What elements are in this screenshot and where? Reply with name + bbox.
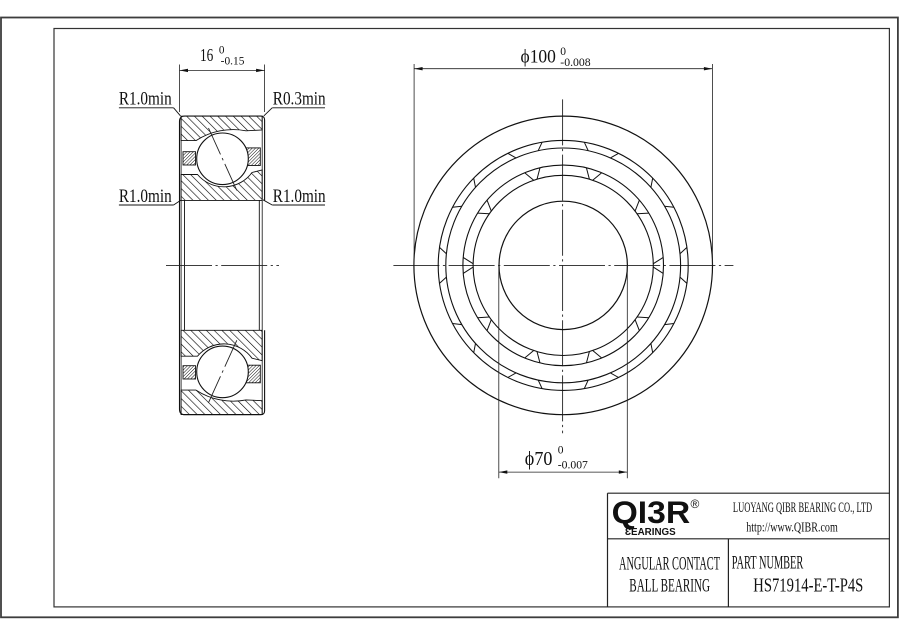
svg-text:-0.007: -0.007 [558, 460, 588, 472]
svg-text:16: 16 [200, 45, 213, 65]
svg-text:ANGULAR CONTACT: ANGULAR CONTACT [619, 553, 720, 574]
svg-text:HS71914-E-T-P4S: HS71914-E-T-P4S [753, 575, 863, 597]
svg-text:R1.0min: R1.0min [119, 89, 172, 109]
svg-text:ϕ70: ϕ70 [525, 449, 553, 470]
svg-text:http://www.QIBR.com: http://www.QIBR.com [746, 521, 838, 536]
svg-text:R1.0min: R1.0min [273, 187, 326, 207]
svg-text:ϕ100: ϕ100 [521, 47, 556, 68]
svg-text:PART NUMBER: PART NUMBER [732, 552, 804, 573]
svg-text:BALL BEARING: BALL BEARING [629, 576, 710, 597]
svg-text:-0.008: -0.008 [560, 57, 591, 69]
svg-text:ƐEARINGS: ƐEARINGS [625, 527, 676, 538]
svg-text:LUOYANG QIBR BEARING CO., LTD: LUOYANG QIBR BEARING CO., LTD [733, 500, 872, 516]
svg-text:-0.15: -0.15 [221, 55, 245, 67]
svg-text:®: ® [691, 497, 700, 511]
svg-text:R1.0min: R1.0min [119, 187, 172, 207]
svg-text:0: 0 [558, 444, 564, 456]
svg-text:R0.3min: R0.3min [273, 89, 326, 109]
svg-text:QI3R: QI3R [612, 494, 691, 530]
